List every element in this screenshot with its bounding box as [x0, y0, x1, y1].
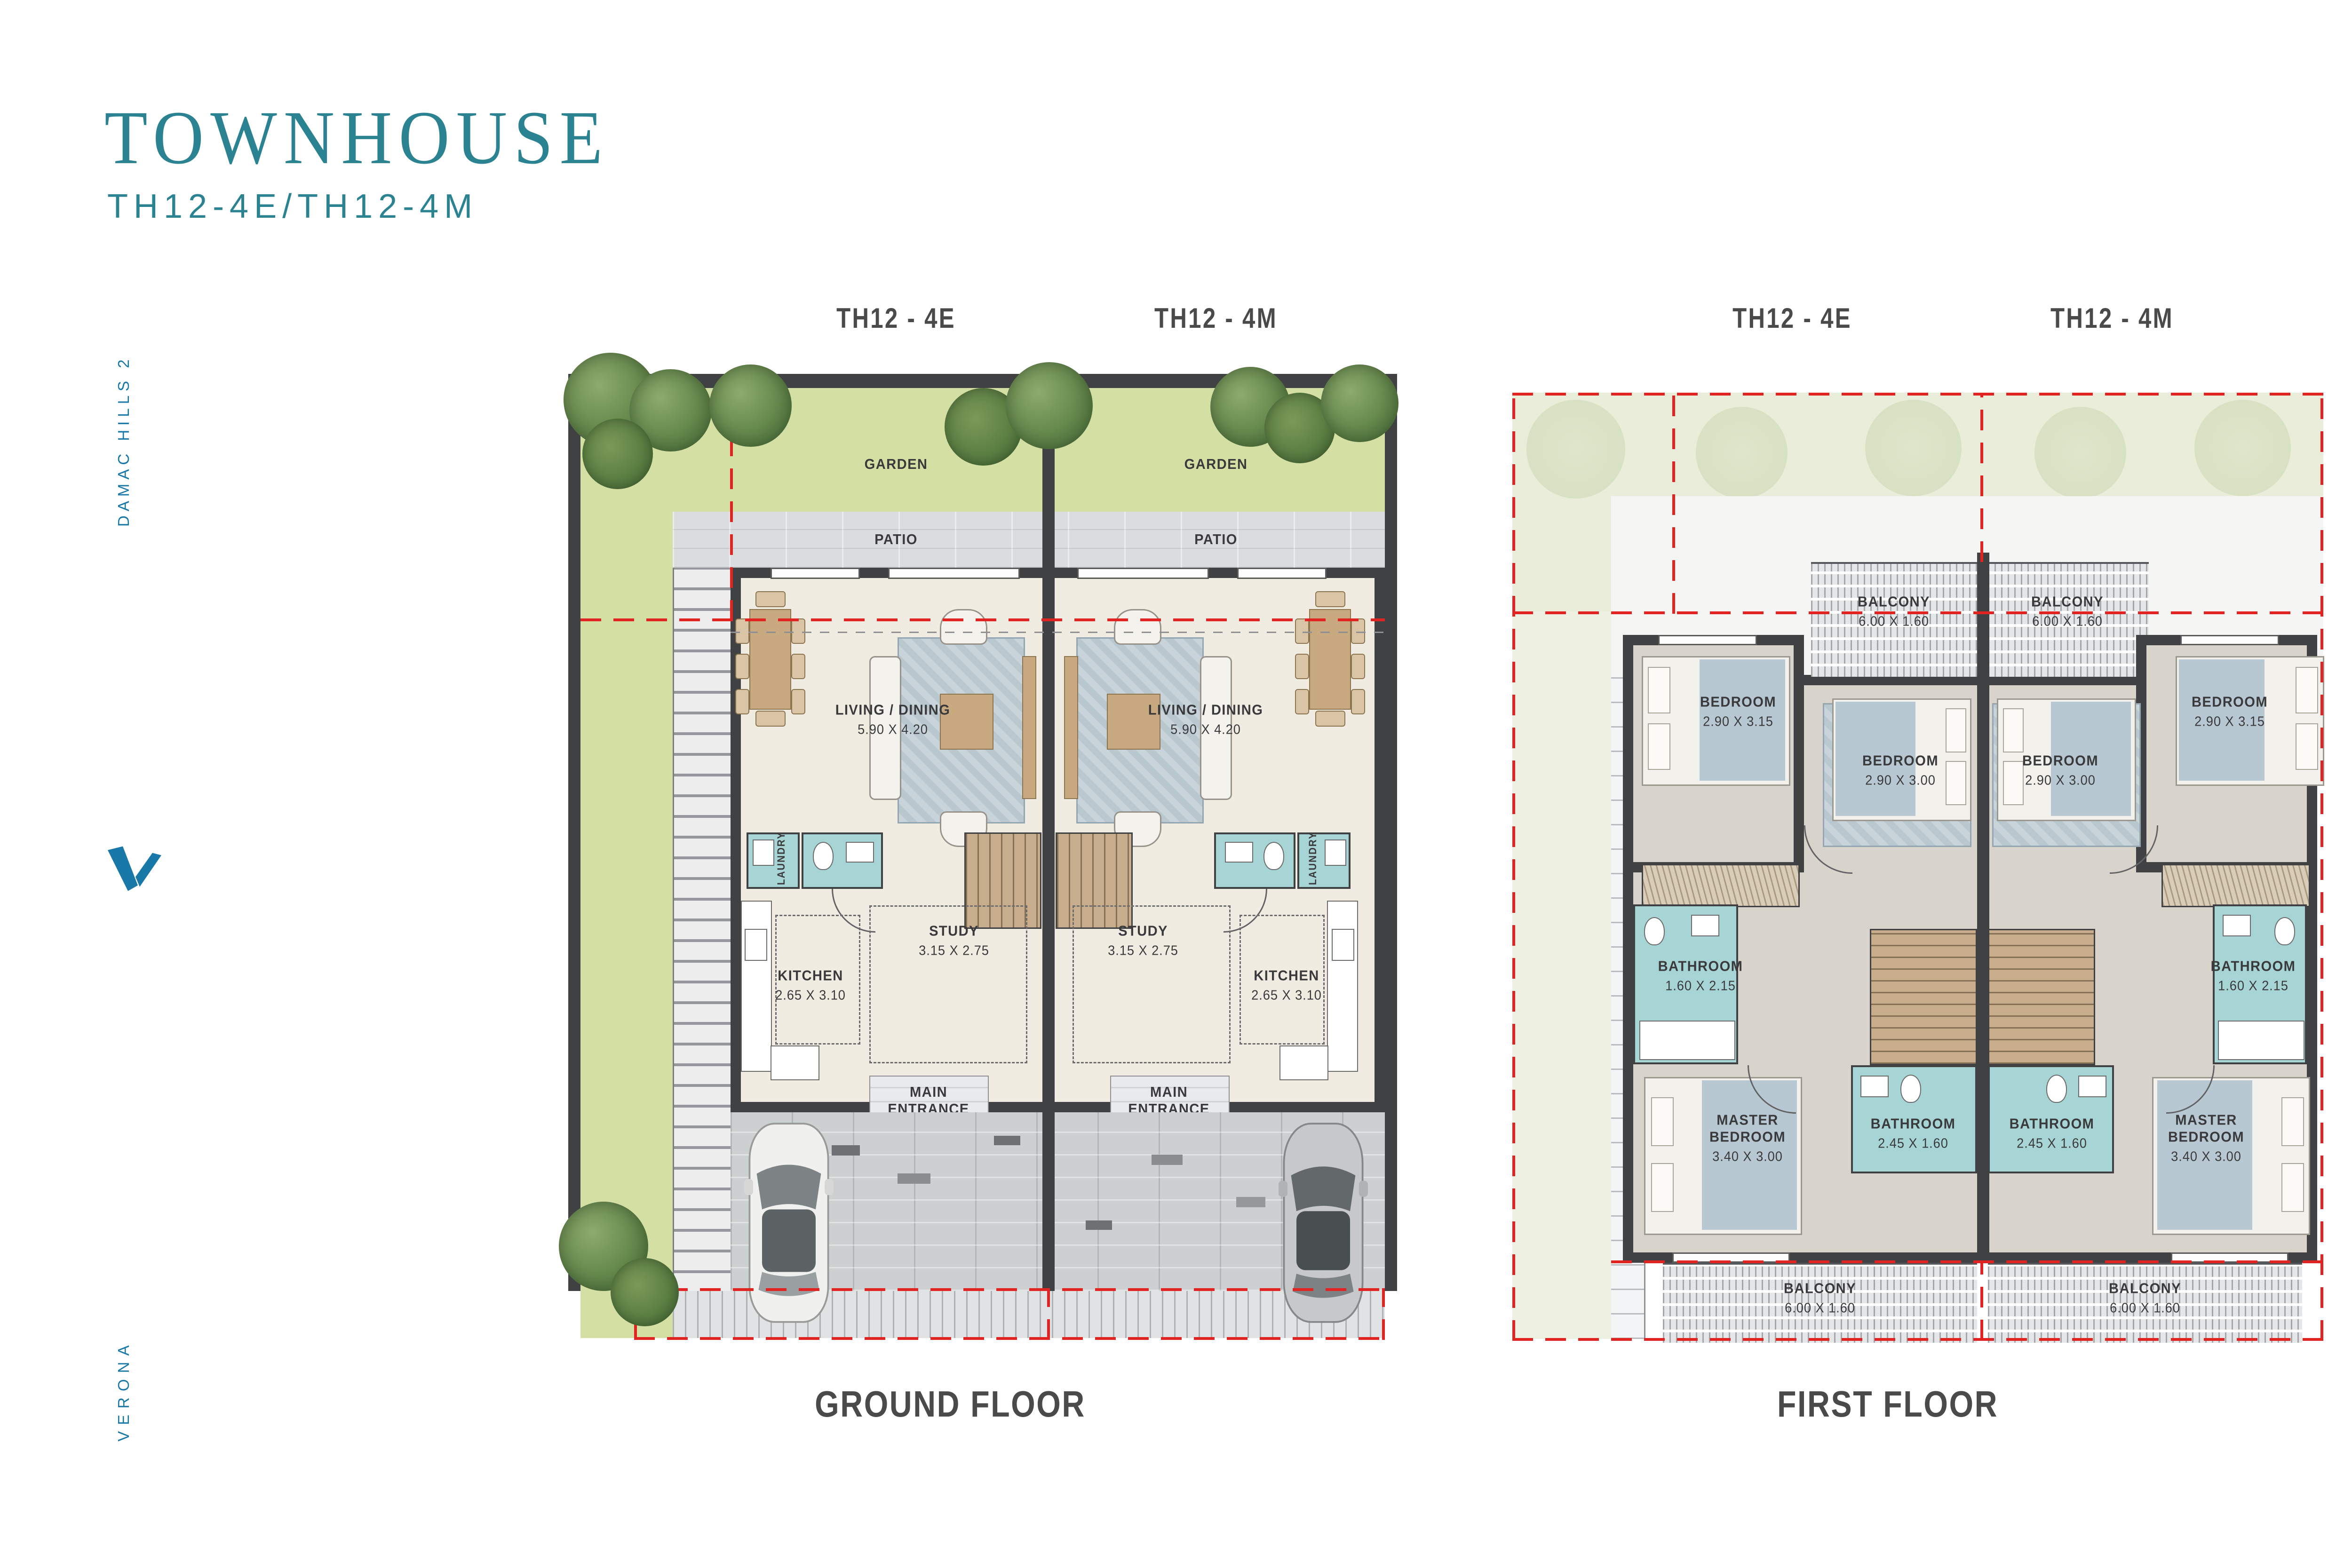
plot-line-red: [1512, 611, 2323, 614]
sink: [1225, 842, 1253, 863]
balcony-label: BALCONY: [1858, 594, 1930, 610]
tree: [1006, 362, 1093, 449]
plot-line-red: [1512, 393, 2323, 396]
balcony-dims: 6.00 X 1.60: [2031, 614, 2104, 630]
pillow: [2281, 1097, 2304, 1146]
pillow: [2296, 667, 2318, 713]
window: [888, 568, 1020, 579]
bathroom-a-label-right: BATHROOM: [2211, 958, 2296, 975]
washing-machine: [753, 839, 774, 866]
dining-chair: [791, 618, 805, 644]
dining-chair: [735, 689, 749, 714]
pillow: [1648, 723, 1670, 770]
dining-chair: [755, 591, 786, 607]
bathroom-b-dims-right: 2.45 X 1.60: [2010, 1136, 2095, 1152]
sink: [2078, 1076, 2106, 1097]
window: [2180, 635, 2279, 645]
bedroom-b-dims-left: 2.90 X 3.00: [1862, 773, 1939, 789]
bedroom-a-label-left: BEDROOM: [1700, 694, 1776, 711]
main-entrance-right: MAIN: [1128, 1084, 1209, 1101]
master-label-left-2: BEDROOM: [1709, 1129, 1786, 1146]
toilet: [2274, 917, 2295, 945]
party-wall: [1977, 553, 1989, 1263]
armchair: [1114, 609, 1161, 645]
dining-chair: [1295, 654, 1309, 679]
study-label-right: STUDY: [1108, 923, 1178, 940]
tree-faint: [1526, 400, 1625, 499]
sink: [846, 842, 874, 863]
paver-tile: [994, 1136, 1020, 1145]
armchair: [940, 609, 987, 645]
tree: [1321, 364, 1398, 442]
pillow: [1946, 761, 1966, 805]
ground-floor-caption: GROUND FLOOR: [771, 1383, 1130, 1425]
bedroom-b-label-right: BEDROOM: [2022, 752, 2098, 769]
patio-label-left: PATIO: [874, 531, 918, 548]
project-name-vertical: DAMAC HILLS 2: [115, 329, 133, 527]
community-name-vertical: VERONA: [115, 1343, 133, 1441]
living-dims-right: 5.90 X 4.20: [1148, 722, 1263, 738]
pillow: [1651, 1163, 1674, 1212]
staircase: [1988, 929, 2095, 1065]
first-floor-caption: FIRST FLOOR: [1708, 1383, 2068, 1425]
dining-table: [1309, 609, 1351, 710]
page-subtitle: TH12-4E/TH12-4M: [107, 187, 478, 226]
toilet: [2046, 1075, 2067, 1103]
main-entrance-left: MAIN: [888, 1084, 969, 1101]
plot-line-red: [1611, 1260, 2323, 1263]
bedroom-a-dims-right: 2.90 X 3.15: [2192, 714, 2268, 730]
laundry-label-left: LAUNDRY: [775, 839, 787, 885]
pillow: [2296, 723, 2318, 770]
tree-faint: [1865, 400, 1962, 496]
wardrobe: [2161, 864, 2310, 907]
plot-line-red: [634, 1288, 1385, 1291]
dining-chair: [1295, 689, 1309, 714]
window: [1237, 568, 1327, 579]
staircase: [1870, 929, 1977, 1065]
dining-chair: [735, 654, 749, 679]
kitchen-counter-left: [741, 901, 772, 1072]
patio-band: [673, 512, 1385, 568]
pillow: [2281, 1163, 2304, 1212]
bedroom-a-dims-left: 2.90 X 3.15: [1700, 714, 1776, 730]
kitchen-dims-left: 2.65 X 3.10: [775, 988, 846, 1004]
plot-line-red: [1382, 1288, 1385, 1340]
toilet: [813, 842, 834, 870]
master-dims-left: 3.40 X 3.00: [1709, 1149, 1786, 1165]
kitchen-dims-right: 2.65 X 3.10: [1251, 988, 1322, 1004]
bathtub: [2218, 1021, 2304, 1060]
tree-faint: [1696, 407, 1788, 499]
page-title: TOWNHOUSE: [104, 94, 609, 182]
plot-line-red: [1672, 393, 1675, 614]
bathroom-b-label-left: BATHROOM: [1871, 1116, 1956, 1132]
plot-line-red: [2320, 393, 2323, 1341]
master-label-right-2: BEDROOM: [2168, 1129, 2244, 1146]
sink: [1860, 1076, 1889, 1097]
dining-chair: [791, 654, 805, 679]
dining-table: [749, 609, 791, 710]
sink: [1691, 915, 1719, 936]
dining-chair: [1351, 618, 1365, 644]
garden-left-strip: [1512, 611, 1611, 1339]
laundry-label-right: LAUNDRY: [1307, 839, 1319, 885]
pillow: [2003, 708, 2024, 752]
dining-chair: [1315, 711, 1345, 727]
kitchen-label-right: KITCHEN: [1251, 967, 1322, 984]
bathroom-b-label-right: BATHROOM: [2010, 1116, 2095, 1132]
plot-line-red: [580, 618, 1385, 621]
dining-chair: [1351, 654, 1365, 679]
master-label-left: MASTER: [1709, 1112, 1786, 1129]
ground-unit-right-label: TH12 - 4M: [1100, 302, 1332, 334]
first-floor-plan: BALCONY6.00 X 1.60 BALCONY6.00 X 1.60 BE…: [1503, 374, 2331, 1343]
kitchen-label-left: KITCHEN: [775, 967, 846, 984]
toilet: [1900, 1075, 1921, 1103]
balcony-label: BALCONY: [1784, 1280, 1856, 1297]
first-unit-left-label: TH12 - 4E: [1677, 302, 1908, 334]
master-dims-right: 3.40 X 3.00: [2168, 1149, 2244, 1165]
garden-label-left: GARDEN: [865, 456, 928, 473]
dining-chair: [1295, 618, 1309, 644]
pillow: [1946, 708, 1966, 752]
study-dims-left: 3.15 X 2.75: [919, 943, 989, 959]
bathtub: [1639, 1021, 1735, 1060]
page: { "header": { "title": "TOWNHOUSE", "sub…: [0, 0, 2352, 1568]
dining-chair: [1315, 591, 1345, 607]
car-white: [744, 1119, 834, 1326]
paver-tile: [1086, 1220, 1112, 1230]
dining-chair: [735, 618, 749, 644]
tree-faint: [2194, 400, 2291, 496]
toilet: [1263, 842, 1284, 870]
side-walkway-slats: [673, 568, 733, 1291]
window: [771, 568, 860, 579]
bedroom-a-label-right: BEDROOM: [2192, 694, 2268, 711]
study-label-left: STUDY: [919, 923, 989, 940]
kitchen-sink: [1332, 929, 1354, 961]
plot-line-red: [634, 1337, 1385, 1340]
damac-v-logo-icon: [106, 844, 163, 894]
bush: [582, 419, 653, 489]
first-unit-right-label: TH12 - 4M: [1996, 302, 2228, 334]
living-dims-left: 5.90 X 4.20: [835, 722, 951, 738]
site-wall-right: [1385, 374, 1397, 1291]
tv-console: [1064, 656, 1078, 799]
bathroom-a-dims-right: 1.60 X 2.15: [2211, 979, 2296, 994]
stove: [1279, 1045, 1328, 1080]
wardrobe: [1642, 864, 1800, 907]
site-wall-left: [568, 374, 580, 1291]
setback-line-gray: [731, 632, 1385, 633]
ground-floor-plan: GARDEN GARDEN PATIO PATIO LIVING / DININ…: [568, 374, 1397, 1343]
garden-label-right: GARDEN: [1184, 456, 1248, 473]
balcony-label: BALCONY: [2109, 1280, 2181, 1297]
paver-tile: [832, 1145, 860, 1156]
kitchen-sink: [745, 929, 767, 961]
washing-machine: [1325, 839, 1346, 866]
sink: [2223, 915, 2251, 936]
pillow: [1651, 1097, 1674, 1146]
living-label-left: LIVING / DINING: [835, 702, 951, 719]
dining-chair: [791, 689, 805, 714]
car-silver: [1279, 1119, 1368, 1326]
window: [1658, 635, 1757, 645]
tree-faint: [2034, 407, 2126, 499]
garden-left-strip: [580, 388, 673, 1338]
balcony-label: BALCONY: [2031, 594, 2104, 610]
study-dims-right: 3.15 X 2.75: [1108, 943, 1178, 959]
pillow: [1648, 667, 1670, 713]
paver-tile: [1236, 1197, 1265, 1207]
ground-unit-left-label: TH12 - 4E: [780, 302, 1012, 334]
pillow: [2003, 761, 2024, 805]
bathroom-a-label-left: BATHROOM: [1658, 958, 1743, 975]
bedroom-b-label-left: BEDROOM: [1862, 752, 1939, 769]
dining-chair: [755, 711, 786, 727]
master-label-right: MASTER: [2168, 1112, 2244, 1129]
stove: [771, 1045, 819, 1080]
dining-chair: [1351, 689, 1365, 714]
paver-tile: [1152, 1155, 1183, 1165]
tree: [709, 364, 792, 447]
balcony-dims: 6.00 X 1.60: [1858, 614, 1930, 630]
balcony-dims: 6.00 X 1.60: [2109, 1301, 2181, 1316]
patio-label-right: PATIO: [1194, 531, 1238, 548]
window: [1077, 568, 1209, 579]
living-label-right: LIVING / DINING: [1148, 702, 1263, 719]
plot-line-red: [1512, 1338, 2323, 1341]
balcony-dims: 6.00 X 1.60: [1784, 1301, 1856, 1316]
bush: [611, 1258, 679, 1326]
paver-tile: [898, 1173, 930, 1184]
tv-console: [1022, 656, 1036, 799]
plot-line-red: [1512, 393, 1515, 1341]
bathroom-b-dims-left: 2.45 X 1.60: [1871, 1136, 1956, 1152]
bedroom-b-dims-right: 2.90 X 3.00: [2022, 773, 2098, 789]
plot-line-red: [1980, 1260, 1983, 1340]
bathroom-a-dims-left: 1.60 X 2.15: [1658, 979, 1743, 994]
plot-line-red: [1980, 393, 1983, 562]
toilet: [1644, 917, 1665, 945]
party-wall: [1042, 374, 1055, 1291]
kitchen-counter-right: [1327, 901, 1358, 1072]
plot-line-red: [1047, 1288, 1050, 1340]
